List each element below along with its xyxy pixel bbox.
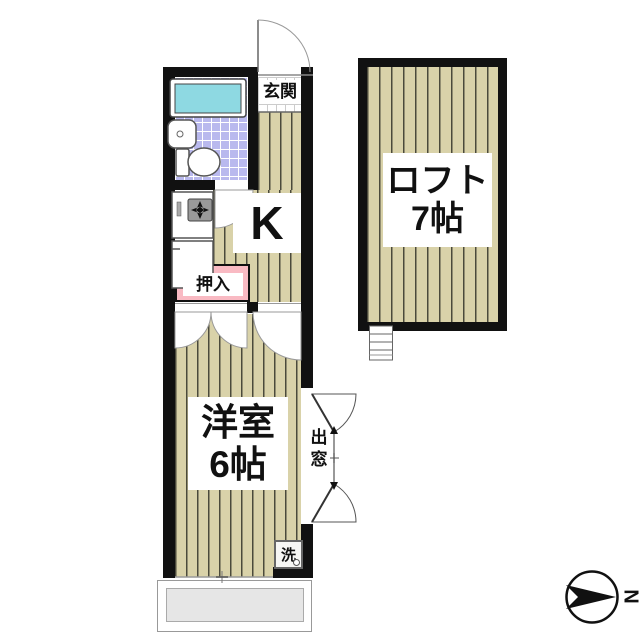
door-track: [175, 303, 301, 314]
bay-tick-bottom: [330, 482, 338, 490]
floorplan-canvas: 玄関 K 押入 洋室 6帖 ロフト 7帖 出 窓 洗 N: [0, 0, 640, 640]
burner-star: [191, 201, 209, 219]
bay-casement-bottom-sash: [312, 484, 334, 522]
burner-center: [198, 208, 203, 213]
loft-wall-bottom: [358, 322, 507, 331]
entrance-label: 玄関: [259, 80, 301, 104]
stove-burner-icon: [188, 199, 212, 221]
unit-wall-left: [163, 67, 175, 578]
loft-wall-right: [498, 58, 507, 331]
bay-tick-top: [330, 426, 338, 434]
loft-ladder: [370, 326, 393, 360]
bay-window-label: 出 窓: [308, 427, 330, 471]
bathroom-wall-right: [248, 77, 258, 190]
loft-line1: ロフト: [387, 162, 489, 200]
washing-machine: 洗: [274, 540, 303, 569]
main-room-line2: 6帖: [209, 444, 267, 485]
loft-label-box: ロフト 7帖: [383, 153, 492, 247]
compass-north-label: N: [619, 586, 640, 608]
stove-panel: [177, 202, 181, 216]
entrance-label-text: 玄関: [263, 82, 297, 101]
bathroom-floor: [175, 77, 248, 180]
unit-wall-right-upper: [301, 67, 313, 388]
kitchen-label-box: K: [233, 193, 301, 253]
washer-dial-icon: [293, 559, 300, 566]
loft-outer-wall: [358, 58, 507, 67]
main-room-line1: 洋室: [201, 402, 275, 443]
hallway-floor: [258, 112, 301, 190]
compass-north-text: N: [620, 589, 640, 603]
room-divider-chunk2: [247, 302, 258, 313]
stove-counter: [172, 192, 213, 238]
balcony-inner: [166, 588, 304, 622]
bay-window-char1: 出: [311, 427, 328, 449]
bay-casement-bottom: [312, 484, 356, 522]
loft-wall-left: [358, 58, 367, 331]
loft-line2: 7帖: [411, 200, 464, 238]
unit-wall-top: [163, 67, 258, 77]
closet-label-box: 押入: [183, 273, 243, 296]
closet-label-text: 押入: [196, 275, 230, 294]
kitchen-label-text: K: [250, 196, 283, 250]
main-room-label-box: 洋室 6帖: [188, 397, 288, 490]
compass-circle: [567, 572, 618, 623]
compass-arrow: [566, 585, 616, 609]
bay-window-char2: 窓: [311, 449, 328, 471]
entrance-door-arc: [258, 20, 310, 72]
bathroom-wall-bottom: [163, 180, 215, 190]
